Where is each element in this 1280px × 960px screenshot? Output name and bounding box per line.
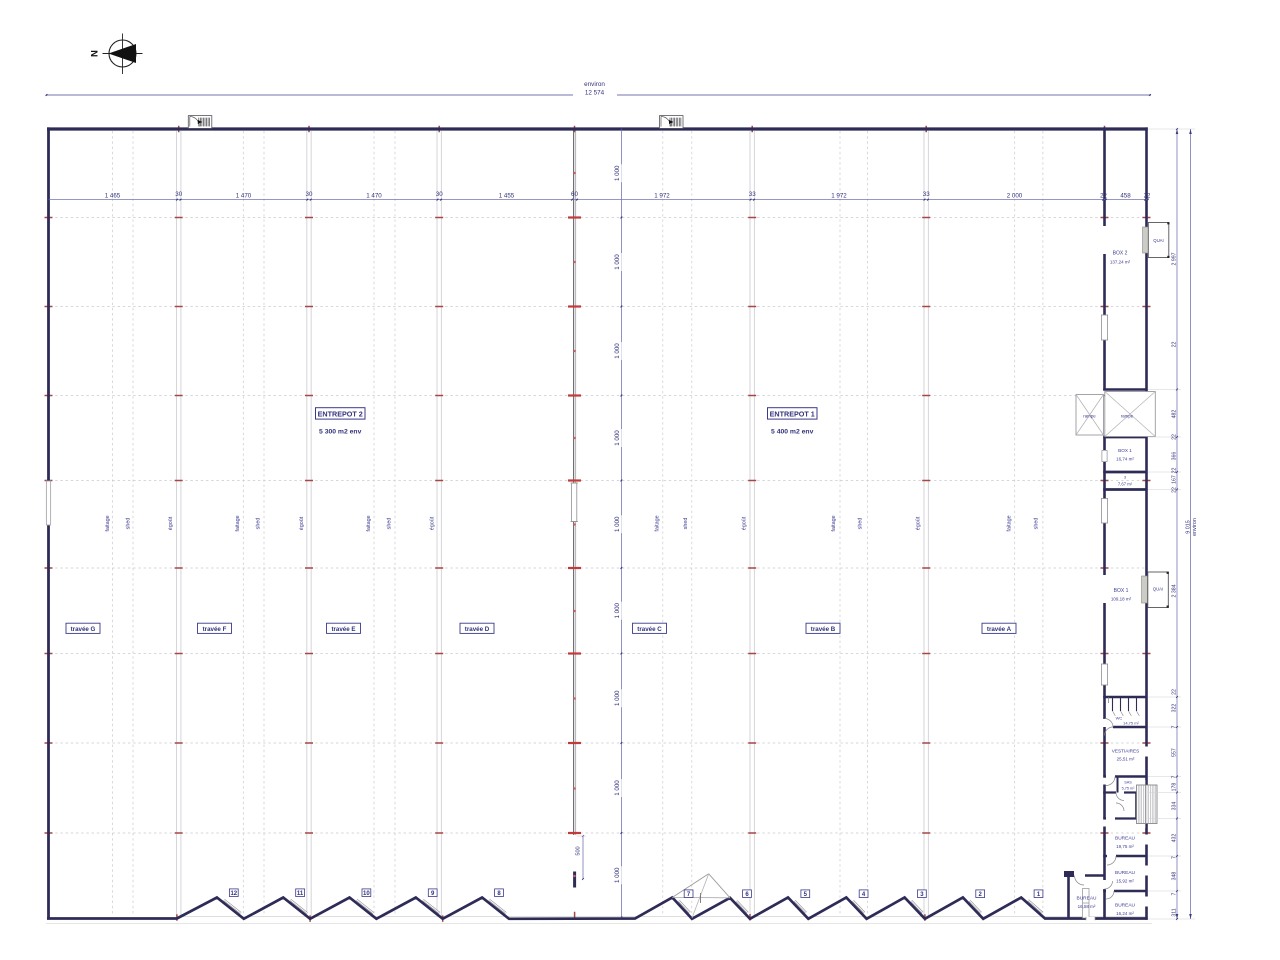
svg-text:WC: WC bbox=[1116, 716, 1123, 721]
svg-text:16,24 m²: 16,24 m² bbox=[1116, 911, 1134, 916]
svg-text:VESTIAIRES: VESTIAIRES bbox=[1112, 749, 1140, 754]
svg-text:322: 322 bbox=[1172, 704, 1178, 713]
svg-text:12 574: 12 574 bbox=[585, 90, 605, 97]
svg-text:BUREAU: BUREAU bbox=[1115, 903, 1136, 909]
svg-text:shed: shed bbox=[683, 518, 689, 530]
svg-text:7: 7 bbox=[1172, 725, 1178, 728]
svg-text:7,67 m²: 7,67 m² bbox=[1118, 481, 1133, 486]
svg-text:11: 11 bbox=[297, 891, 304, 897]
svg-text:137,24 m²: 137,24 m² bbox=[1110, 260, 1131, 265]
svg-text:shed: shed bbox=[387, 518, 393, 530]
svg-text:1 000: 1 000 bbox=[614, 254, 621, 270]
svg-text:QUAI: QUAI bbox=[1153, 238, 1164, 243]
svg-text:7: 7 bbox=[1172, 775, 1178, 778]
svg-text:1 972: 1 972 bbox=[654, 192, 670, 199]
svg-text:shed: shed bbox=[125, 518, 131, 530]
svg-text:22: 22 bbox=[1172, 689, 1178, 695]
svg-text:1 455: 1 455 bbox=[499, 192, 515, 199]
svg-text:1 972: 1 972 bbox=[831, 192, 847, 199]
svg-text:30: 30 bbox=[175, 191, 182, 198]
svg-text:22: 22 bbox=[1100, 193, 1107, 199]
svg-text:environ: environ bbox=[1192, 518, 1198, 536]
svg-text:19,75 m²: 19,75 m² bbox=[1116, 844, 1134, 849]
svg-text:travée F: travée F bbox=[203, 626, 227, 633]
svg-text:BOX 2: BOX 2 bbox=[1113, 251, 1128, 257]
svg-text:30: 30 bbox=[306, 191, 313, 198]
svg-text:5,75 m²: 5,75 m² bbox=[1122, 787, 1136, 791]
svg-text:travée A: travée A bbox=[987, 626, 1012, 633]
svg-text:égoût: égoût bbox=[168, 516, 174, 530]
svg-text:rampe: rampe bbox=[1083, 413, 1096, 418]
svg-text:faitage: faitage bbox=[235, 515, 241, 531]
svg-text:travée B: travée B bbox=[811, 626, 836, 633]
svg-text:30: 30 bbox=[436, 191, 443, 198]
svg-text:1 470: 1 470 bbox=[236, 192, 252, 199]
svg-text:égoût: égoût bbox=[916, 516, 922, 530]
svg-text:faitage: faitage bbox=[831, 515, 837, 531]
svg-text:BOX 1: BOX 1 bbox=[1118, 448, 1132, 453]
svg-text:16,74 m²: 16,74 m² bbox=[1116, 457, 1134, 462]
svg-text:33: 33 bbox=[923, 191, 930, 198]
svg-text:557: 557 bbox=[1172, 748, 1178, 757]
svg-text:travée C: travée C bbox=[637, 626, 662, 633]
svg-text:366: 366 bbox=[1172, 452, 1178, 461]
svg-text:33: 33 bbox=[749, 191, 756, 198]
svg-text:1 000: 1 000 bbox=[614, 602, 621, 618]
svg-text:faitage: faitage bbox=[366, 515, 372, 531]
svg-text:500: 500 bbox=[576, 846, 582, 855]
svg-text:ENTREPOT 2: ENTREPOT 2 bbox=[318, 409, 363, 418]
svg-text:shed: shed bbox=[1034, 518, 1040, 530]
svg-text:12: 12 bbox=[230, 891, 237, 897]
svg-text:shed: shed bbox=[858, 518, 864, 530]
svg-text:15,92 m²: 15,92 m² bbox=[1116, 879, 1134, 884]
svg-text:178: 178 bbox=[1172, 783, 1178, 792]
svg-text:60: 60 bbox=[571, 191, 578, 198]
svg-text:égoût: égoût bbox=[430, 516, 436, 530]
svg-text:2 997: 2 997 bbox=[1172, 252, 1178, 265]
svg-text:167: 167 bbox=[1172, 475, 1178, 484]
svg-text:faitage: faitage bbox=[1007, 515, 1013, 531]
svg-text:égoût: égoût bbox=[742, 516, 748, 530]
svg-text:9 015: 9 015 bbox=[1185, 520, 1191, 534]
svg-text:1 470: 1 470 bbox=[366, 192, 382, 199]
svg-text:shed: shed bbox=[256, 518, 262, 530]
svg-text:109,18 m²: 109,18 m² bbox=[1111, 597, 1132, 602]
svg-text:travée E: travée E bbox=[331, 626, 355, 633]
svg-text:1 000: 1 000 bbox=[614, 430, 621, 446]
svg-text:432: 432 bbox=[1172, 834, 1178, 843]
svg-text:22: 22 bbox=[1172, 434, 1178, 440]
svg-text:N: N bbox=[90, 50, 101, 57]
svg-text:faitage: faitage bbox=[655, 515, 661, 531]
svg-text:1 000: 1 000 bbox=[614, 867, 621, 883]
svg-text:ENTREPOT 1: ENTREPOT 1 bbox=[770, 409, 815, 418]
svg-text:BUREAU: BUREAU bbox=[1077, 896, 1098, 902]
svg-text:16,58 m²: 16,58 m² bbox=[1078, 904, 1096, 909]
svg-text:458: 458 bbox=[1120, 192, 1131, 199]
svg-text:7: 7 bbox=[1172, 892, 1178, 895]
svg-text:travée G: travée G bbox=[71, 626, 96, 633]
svg-text:334: 334 bbox=[1172, 802, 1178, 811]
svg-text:22: 22 bbox=[1172, 468, 1178, 474]
svg-text:BUREAU: BUREAU bbox=[1115, 836, 1136, 842]
svg-text:5 300 m2 env: 5 300 m2 env bbox=[319, 429, 362, 436]
svg-text:2 000: 2 000 bbox=[1007, 192, 1023, 199]
svg-text:348: 348 bbox=[1172, 872, 1178, 881]
svg-text:SAS: SAS bbox=[1124, 781, 1132, 785]
svg-text:2 384: 2 384 bbox=[1172, 584, 1178, 597]
svg-text:1 000: 1 000 bbox=[614, 165, 621, 181]
svg-text:482: 482 bbox=[1172, 410, 1178, 419]
svg-text:7: 7 bbox=[1172, 856, 1178, 859]
svg-text:égoût: égoût bbox=[299, 516, 305, 530]
svg-text:BOX 1: BOX 1 bbox=[1114, 588, 1129, 594]
svg-text:1 000: 1 000 bbox=[614, 516, 621, 532]
svg-text:1 000: 1 000 bbox=[614, 780, 621, 796]
svg-text:22: 22 bbox=[1172, 487, 1178, 493]
svg-text:1 000: 1 000 bbox=[614, 343, 621, 359]
svg-text:faitage: faitage bbox=[105, 515, 111, 531]
svg-text:QUAI: QUAI bbox=[1153, 587, 1164, 592]
svg-text:14,75 m²: 14,75 m² bbox=[1123, 721, 1139, 726]
svg-text:25,51 m²: 25,51 m² bbox=[1117, 757, 1135, 762]
svg-text:environ: environ bbox=[584, 81, 605, 88]
svg-text:BUREAU: BUREAU bbox=[1115, 870, 1136, 876]
svg-text:1 465: 1 465 bbox=[105, 192, 121, 199]
svg-text:5 400 m2 env: 5 400 m2 env bbox=[771, 429, 814, 436]
svg-text:22: 22 bbox=[1172, 342, 1178, 348]
svg-text:rampe: rampe bbox=[1121, 413, 1134, 418]
svg-text:311: 311 bbox=[1172, 908, 1178, 916]
svg-text:10: 10 bbox=[363, 891, 370, 897]
svg-text:travée D: travée D bbox=[465, 626, 490, 633]
svg-text:22: 22 bbox=[1144, 193, 1151, 199]
svg-text:1 000: 1 000 bbox=[614, 690, 621, 706]
